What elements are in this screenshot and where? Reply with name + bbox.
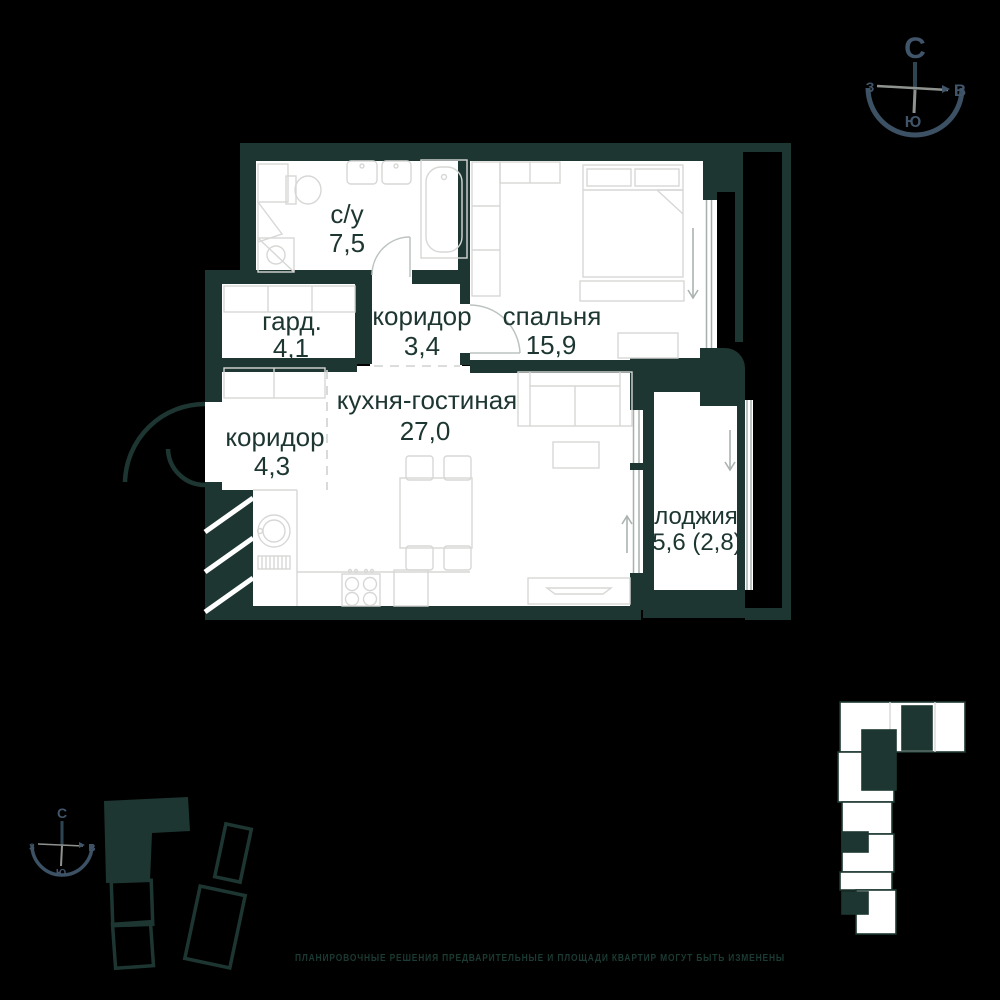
room-name-bedroom: спальня (503, 301, 602, 331)
compass-south-label: Ю (56, 868, 66, 879)
loggia-window (745, 400, 753, 590)
compass-rose-small: С З В Ю (29, 805, 95, 879)
room-name-hall34: коридор (372, 301, 471, 331)
minimap-unit-highlighted (902, 706, 932, 750)
compass-east-arrowhead (942, 85, 950, 93)
bathroom-door-opening (372, 268, 412, 286)
site-building-outline (215, 824, 252, 882)
minimap-unit-highlighted (842, 832, 868, 852)
room-area-hall43: 4,3 (254, 451, 290, 481)
disclaimer-text: ПЛАНИРОВОЧНЫЕ РЕШЕНИЯ ПРЕДВАРИТЕЛЬНЫЕ И … (295, 953, 785, 964)
compass-east-arrowhead (79, 842, 85, 848)
room-name-bathroom: с/у (330, 199, 363, 229)
room-name-wardrobe: гард. (262, 306, 322, 336)
room-name-hall43: коридор (225, 422, 324, 452)
minimap-unit-highlighted (862, 730, 896, 790)
compass-west-label: З (866, 79, 875, 95)
compass-east-label: В (954, 81, 966, 100)
room-name-kitchen: кухня-гостиная (337, 385, 517, 415)
entrance-door-opening (205, 402, 222, 482)
room-area-wardrobe: 4,1 (273, 333, 309, 363)
room-area-bedroom: 15,9 (526, 330, 577, 360)
site-plan: С З В Ю (29, 797, 251, 968)
site-building-outline (111, 880, 153, 925)
shaft-hatch (205, 490, 253, 612)
compass-north-label: С (904, 32, 926, 65)
compass-rose-main: С З В Ю (866, 32, 967, 135)
compass-south-label: Ю (905, 114, 922, 131)
compass-north-label: С (57, 805, 67, 821)
exterior-outline-bottom (745, 608, 791, 620)
room-loggia-floor (653, 390, 738, 592)
room-area-hall34: 3,4 (404, 331, 440, 361)
compass-east-label: В (88, 843, 95, 854)
room-area-kitchen: 27,0 (400, 416, 451, 446)
entrance-door-arc (125, 404, 205, 485)
balcony-rail (735, 152, 743, 342)
bedroom-window (703, 200, 717, 348)
site-building-highlighted (104, 797, 190, 883)
site-building-outline (185, 886, 245, 968)
room-area-loggia: 5,6 (2,8) (652, 529, 741, 556)
floor-plan-canvas: с/у 7,5 спальня 15,9 гард. 4,1 коридор 3… (0, 0, 1000, 1000)
kitchen-loggia-window (630, 410, 643, 573)
building-minimap (838, 702, 965, 934)
exterior-outline-right (782, 143, 791, 620)
site-building-outline (113, 922, 154, 969)
compass-west-label: З (29, 842, 35, 852)
room-name-loggia: лоджия (654, 503, 738, 530)
room-area-bathroom: 7,5 (329, 228, 365, 258)
minimap-unit-highlighted (842, 892, 868, 914)
